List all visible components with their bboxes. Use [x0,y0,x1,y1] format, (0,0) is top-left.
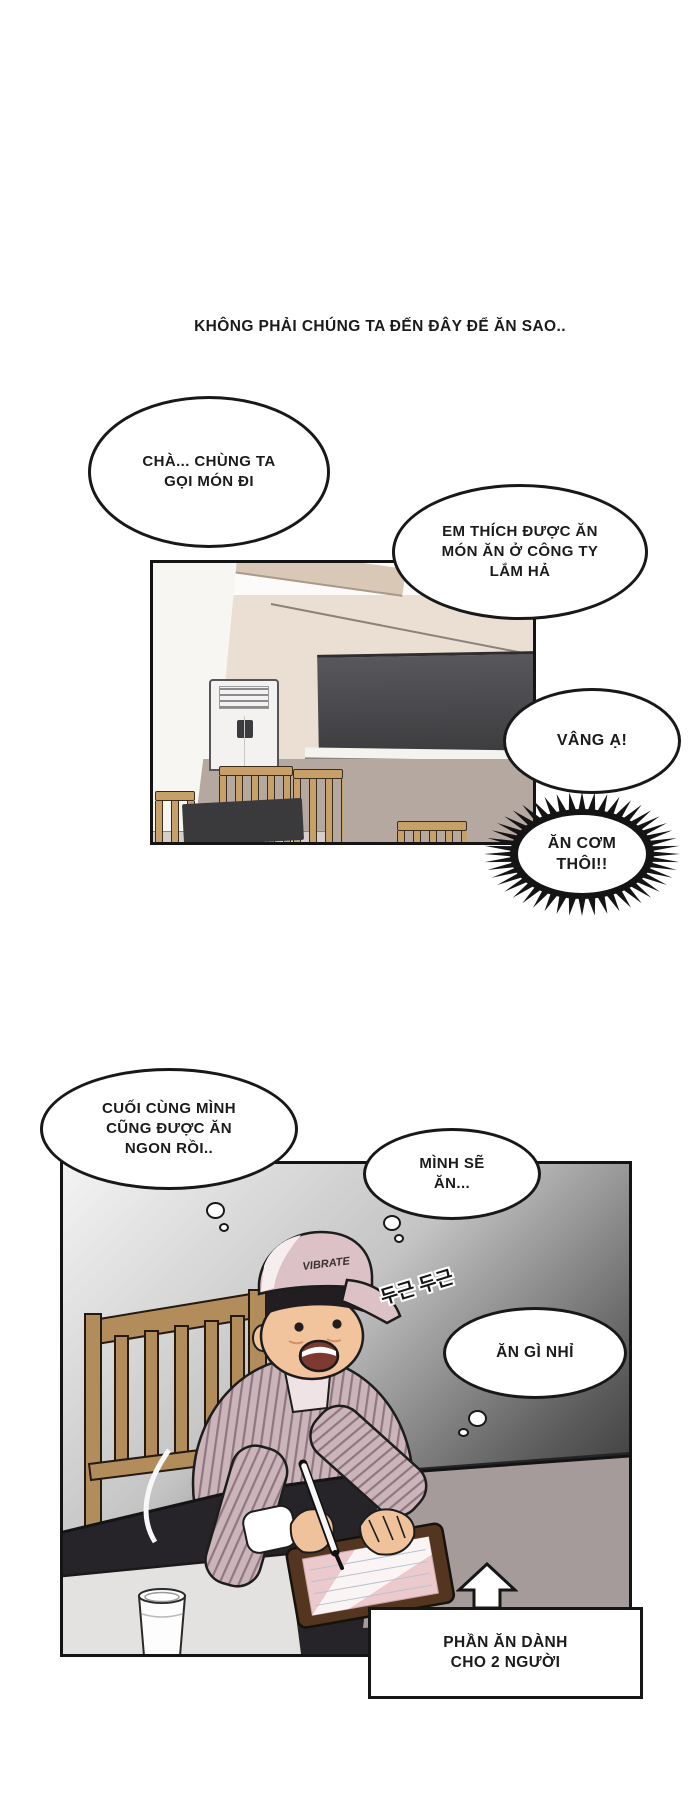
burst-bubble: ĂN CƠM THÔI!! [482,790,682,918]
thought-bubble-finally: CUỐI CÙNG MÌNH CŨNG ĐƯỢC ĂN NGON RỒI.. [40,1068,298,1190]
right-hand [360,1509,414,1554]
thought-bubble-what-to-eat: ĂN GÌ NHỈ [443,1307,627,1399]
speech-bubble-yes: VÂNG Ạ! [503,688,681,794]
speech-bubble-order: CHÀ... CHÙNG TA GỌI MÓN ĐI [88,396,330,548]
thought-dot [458,1428,469,1437]
thought-dot [219,1223,229,1232]
eye [294,1322,303,1331]
ac-seam [244,716,245,769]
panel-man-writing: VIBRATE [60,1161,632,1657]
open-mouth [300,1341,338,1371]
up-arrow-icon [456,1562,518,1610]
ac-display [237,720,253,738]
thought-dot [468,1410,487,1427]
dining-table [182,798,304,845]
milk-glass [139,1589,185,1654]
narration-text: KHÔNG PHẢI CHÚNG TA ĐẾN ĐÂY ĐỂ ĂN SAO.. [150,318,610,336]
burst-text: ĂN CƠM THÔI!! [482,790,682,918]
thought-dot [383,1215,401,1231]
chair [397,821,467,842]
speech-bubble-company-food: EM THÍCH ĐƯỢC ĂN MÓN ĂN Ở CÔNG TY LẮM HẢ [392,484,648,620]
comic-page: KHÔNG PHẢI CHÚNG TA ĐẾN ĐÂY ĐỂ ĂN SAO.. … [0,0,690,1799]
eye [332,1319,341,1328]
air-conditioner [209,679,279,771]
thought-dot [206,1202,225,1219]
man-head: VIBRATE [253,1232,400,1379]
thought-dot [394,1234,404,1243]
ac-vents [219,686,269,709]
caption-box: PHẦN ĂN DÀNH CHO 2 NGƯỜI [368,1607,643,1699]
thought-bubble-will-eat: MÌNH SẼ ĂN... [363,1128,541,1220]
panel2-art: VIBRATE [63,1164,629,1654]
